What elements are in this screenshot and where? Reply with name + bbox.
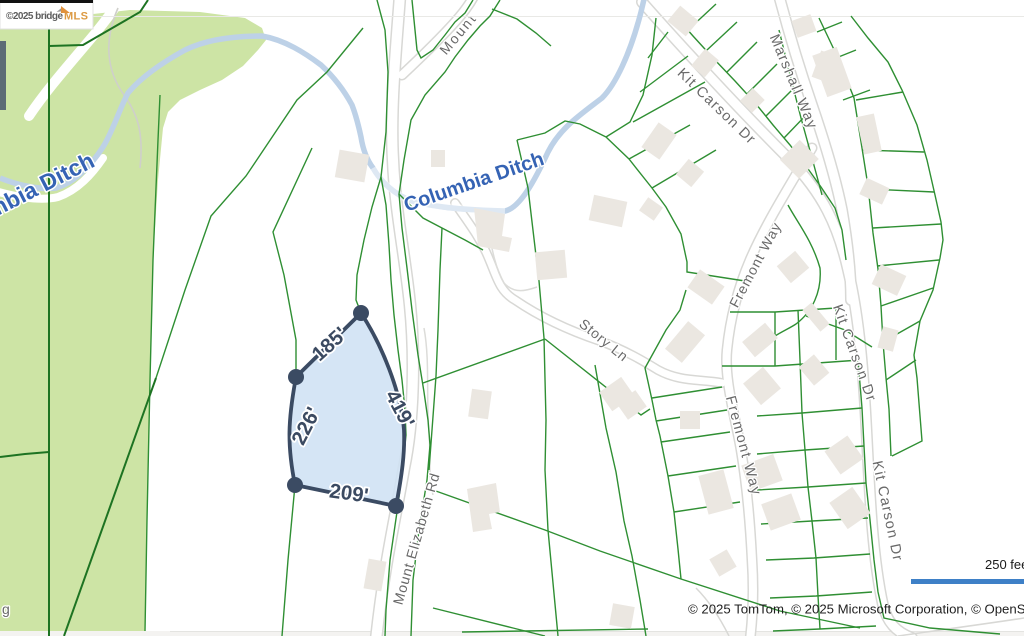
svg-text:©2025 bridge: ©2025 bridge	[6, 11, 63, 22]
svg-text:g: g	[2, 601, 10, 617]
svg-text:© 2025 TomTom, © 2025 Microsof: © 2025 TomTom, © 2025 Microsoft Corporat…	[688, 602, 1024, 617]
svg-text:250 feet: 250 feet	[985, 557, 1024, 572]
